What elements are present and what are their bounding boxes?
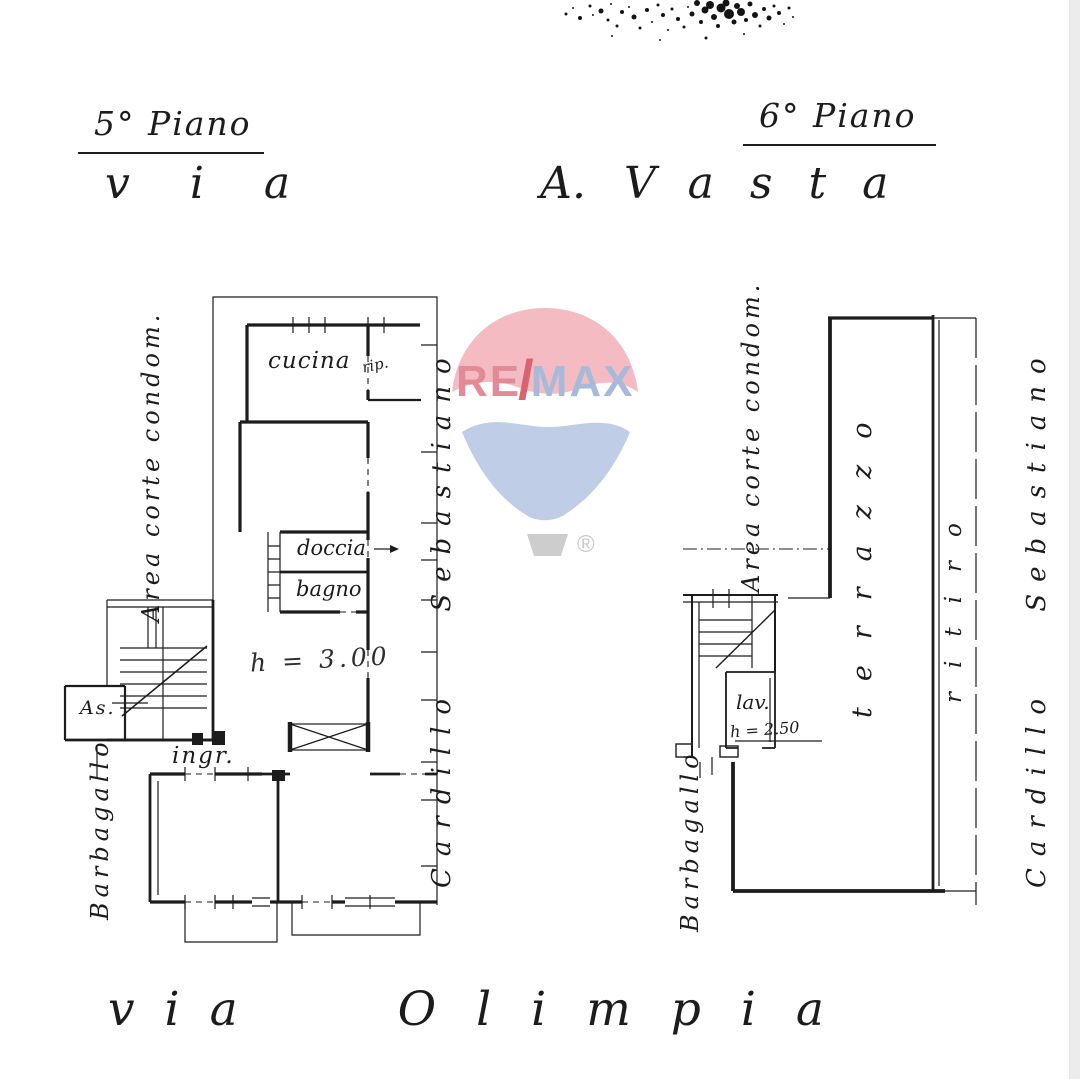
side-label-cardillo-sebastiano-6: Cardillo Sebastiano — [1022, 346, 1052, 888]
street-name-bottom: via Olimpia — [108, 982, 864, 1037]
side-label-area-corte-5: Area corte condom. — [137, 311, 165, 622]
room-label-ritiro: ritiro — [941, 499, 967, 703]
side-label-barbagallo-6: Barbagallo — [676, 749, 704, 932]
street-bottom-word-olimpia: Olimpia — [398, 982, 864, 1037]
street-top-word-via: via — [105, 158, 350, 209]
room-label-ingresso: ingr. — [172, 743, 235, 769]
street-name-top: via A. Vasta — [105, 158, 924, 209]
room-label-lavanderia: lav. — [736, 690, 770, 714]
room-label-terrazzo: terrazzo — [847, 397, 878, 718]
room-label-doccia: doccia — [297, 536, 366, 560]
side-label-area-corte-6: Area corte condom. — [737, 281, 765, 592]
scan-edge-shadow — [1070, 0, 1080, 1079]
floor-5-title: 5° Piano — [78, 104, 264, 154]
room-label-ascensore: As. — [80, 697, 116, 719]
room-label-bagno: bagno — [296, 577, 362, 601]
street-top-word-a: A. — [540, 158, 586, 209]
room-label-cucina: cucina — [268, 348, 350, 374]
scanner-noise — [565, 0, 795, 41]
scanned-floorplan-page: RE / MAX ® — [0, 0, 1080, 1079]
street-top-word-vasta: Vasta — [624, 158, 924, 209]
side-label-cardillo-sebastiano-5: Cardillo Sebastiano — [427, 346, 457, 888]
side-label-barbagallo-5: Barbagallo — [86, 737, 114, 920]
street-bottom-word-via: via — [108, 982, 268, 1037]
floor-plan-6-linework — [676, 315, 976, 905]
floor-6-title: 6° Piano — [743, 96, 936, 146]
floor-plan-5-linework — [65, 297, 437, 942]
